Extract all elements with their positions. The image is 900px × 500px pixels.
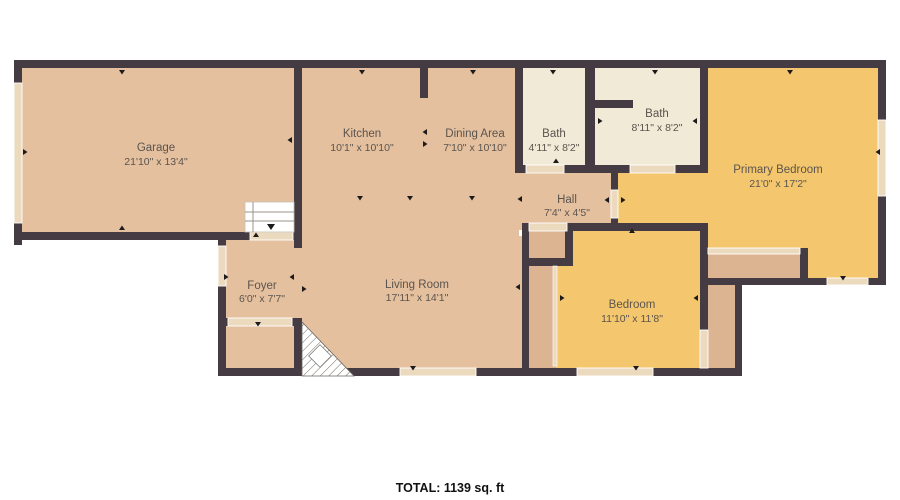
room-kitchen-dining — [298, 64, 519, 244]
living-room-label: Living Room — [385, 279, 449, 291]
primary-bedroom-label: Primary Bedroom — [733, 164, 822, 176]
kitchen-label: Kitchen — [343, 128, 381, 140]
hall-label: Hall — [557, 194, 577, 206]
foyer-dims: 6'0" x 7'7" — [239, 293, 285, 305]
dining-area-label: Dining Area — [445, 128, 505, 140]
closet-hall — [526, 228, 569, 262]
floor-plan-svg: Garage 21'10" x 13'4" Kitchen 10'1" x 10… — [0, 0, 900, 500]
primary-bottom-opening — [827, 278, 868, 285]
primary-closet-opening — [708, 248, 800, 254]
bath-large-label: Bath — [645, 108, 669, 120]
bedroom-window — [577, 368, 653, 376]
living-window — [400, 368, 476, 376]
kitchen-dims: 10'1" x 10'10" — [330, 142, 394, 154]
closet-slider-door — [553, 266, 557, 366]
primary-bedroom-dims: 21'0" x 17'2" — [749, 178, 807, 190]
hall-dims: 7'4" x 4'5" — [544, 207, 590, 219]
foyer-window — [218, 246, 226, 286]
bath-small-door — [526, 165, 564, 173]
living-room-dims: 17'11" x 14'1" — [386, 292, 449, 304]
passage-door — [611, 190, 618, 218]
bath-small-dims: 4'11" x 8'2" — [529, 142, 580, 154]
bath-small-label: Bath — [542, 128, 566, 140]
garage-dims: 21'10" x 13'4" — [124, 156, 188, 168]
bedroom-closet-door — [700, 330, 708, 368]
floor-plan-page: Garage 21'10" x 13'4" Kitchen 10'1" x 10… — [0, 0, 900, 500]
room-floors — [18, 64, 882, 372]
dining-area-dims: 7'10" x 10'10" — [443, 142, 507, 154]
garage-label: Garage — [137, 142, 175, 154]
foyer-label: Foyer — [247, 280, 277, 292]
primary-window — [878, 120, 886, 196]
bedroom-label: Bedroom — [609, 299, 656, 311]
garage-door — [14, 83, 22, 223]
bath-large-dims: 8'11" x 8'2" — [632, 122, 683, 134]
stairs-to-garage — [245, 202, 294, 232]
closet-bedroom-strip — [526, 262, 556, 368]
closet-bedroom-side — [704, 280, 738, 372]
total-area-label: TOTAL: 1139 sq. ft — [396, 481, 505, 495]
room-passage — [614, 168, 707, 228]
bath-large-door — [630, 165, 675, 173]
bedroom-dims: 11'10" x 11'8" — [601, 313, 663, 325]
hall-closet-door — [529, 223, 567, 231]
